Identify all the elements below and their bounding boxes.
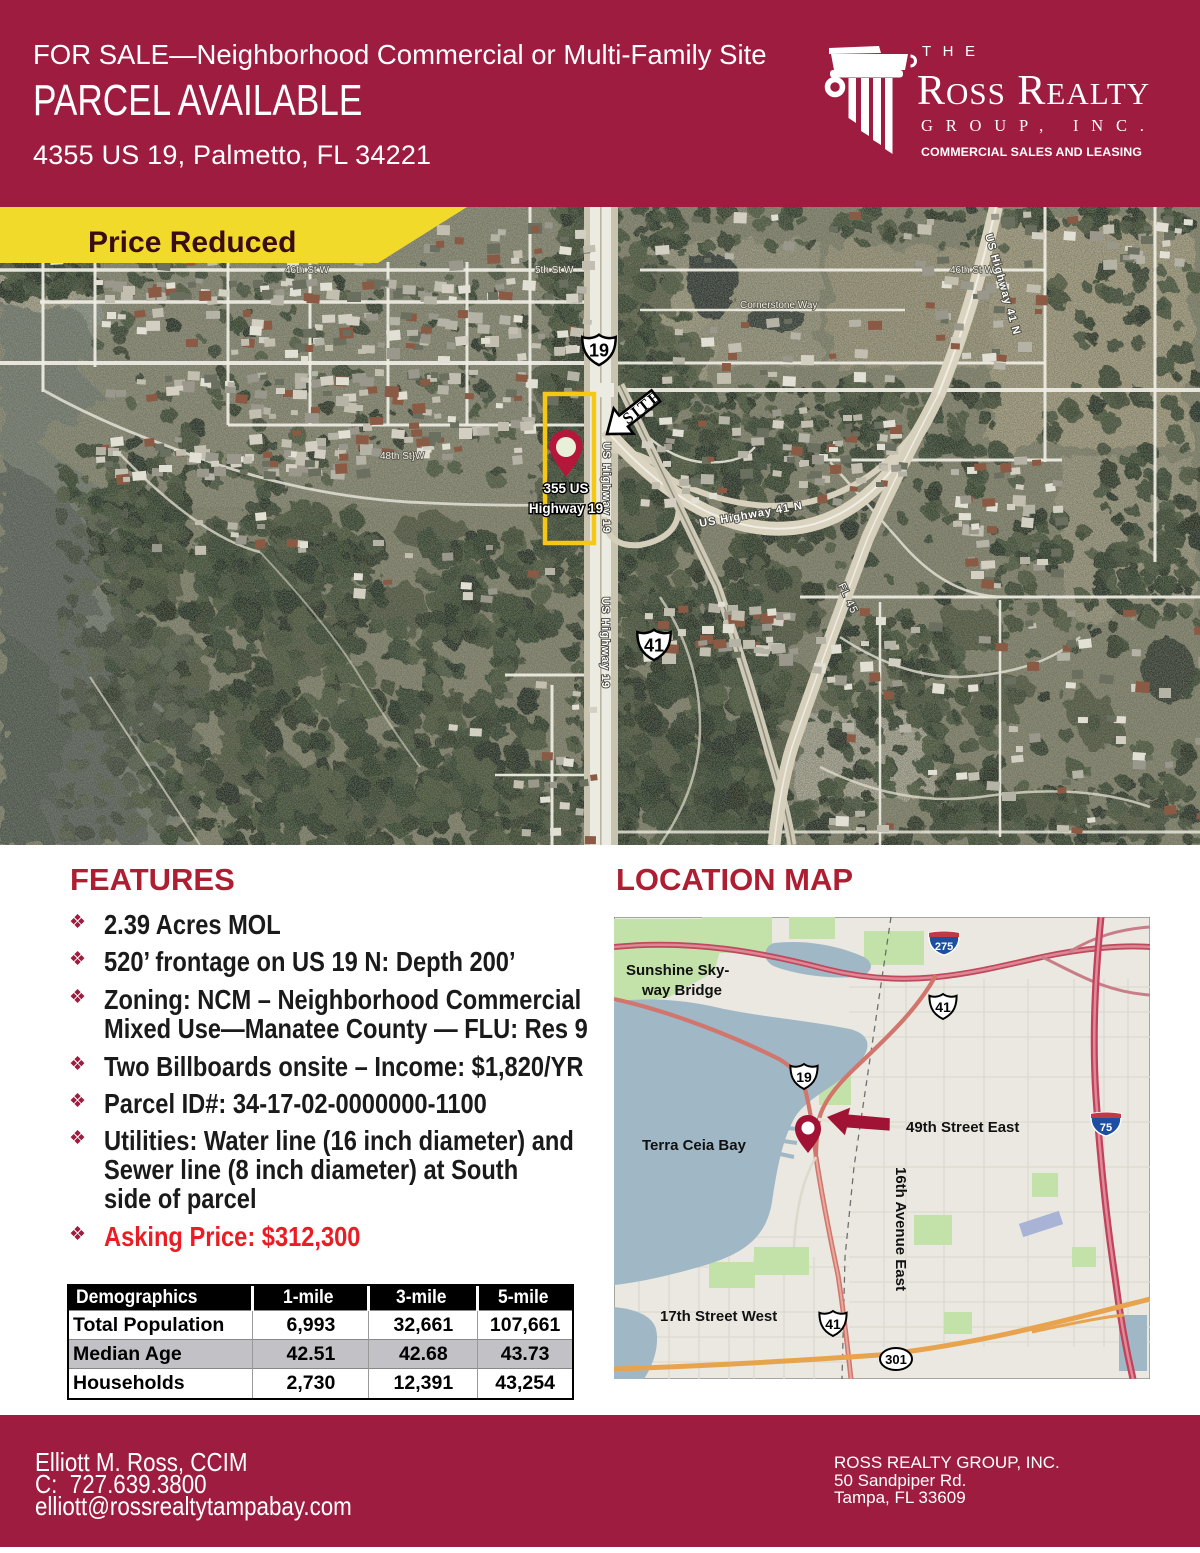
svg-text:41: 41 bbox=[644, 636, 664, 656]
svg-text:COMMERCIAL SALES AND LEASING: COMMERCIAL SALES AND LEASING bbox=[921, 145, 1142, 159]
svg-text:19: 19 bbox=[796, 1069, 812, 1085]
svg-text:5th St W: 5th St W bbox=[535, 265, 574, 276]
svg-text:US Highway 19: US Highway 19 bbox=[599, 597, 611, 689]
svg-text:Cornerstone Way: Cornerstone Way bbox=[740, 300, 817, 311]
svg-text:Highway 19: Highway 19 bbox=[529, 501, 603, 516]
svg-text:US Highway 19: US Highway 19 bbox=[600, 442, 612, 534]
svg-text:Terra Ceia Bay: Terra Ceia Bay bbox=[642, 1137, 747, 1154]
svg-text:GROUP, INC.: GROUP, INC. bbox=[921, 116, 1157, 135]
svg-text:way Bridge: way Bridge bbox=[641, 982, 722, 999]
svg-text:17th Street West: 17th Street West bbox=[660, 1308, 777, 1325]
svg-text:41: 41 bbox=[825, 1316, 841, 1332]
svg-text:46th St W: 46th St W bbox=[950, 265, 994, 276]
svg-text:355 US: 355 US bbox=[543, 481, 588, 496]
svg-text:Price Reduced: Price Reduced bbox=[88, 226, 296, 259]
svg-text:41: 41 bbox=[935, 999, 951, 1015]
svg-text:275: 275 bbox=[935, 941, 953, 953]
svg-text:19: 19 bbox=[589, 341, 609, 361]
svg-text:48th St}W: 48th St}W bbox=[380, 451, 425, 462]
svg-text:Sunshine Sky-: Sunshine Sky- bbox=[626, 962, 729, 979]
svg-text:ROSS REALTY: ROSS REALTY bbox=[917, 68, 1150, 114]
svg-text:THE: THE bbox=[922, 43, 987, 60]
svg-text:46th St W: 46th St W bbox=[285, 265, 329, 276]
svg-text:75: 75 bbox=[1100, 1122, 1112, 1134]
svg-text:49th Street East: 49th Street East bbox=[906, 1119, 1019, 1136]
svg-text:16th Avenue East: 16th Avenue East bbox=[892, 1167, 909, 1291]
svg-text:301: 301 bbox=[885, 1352, 907, 1367]
